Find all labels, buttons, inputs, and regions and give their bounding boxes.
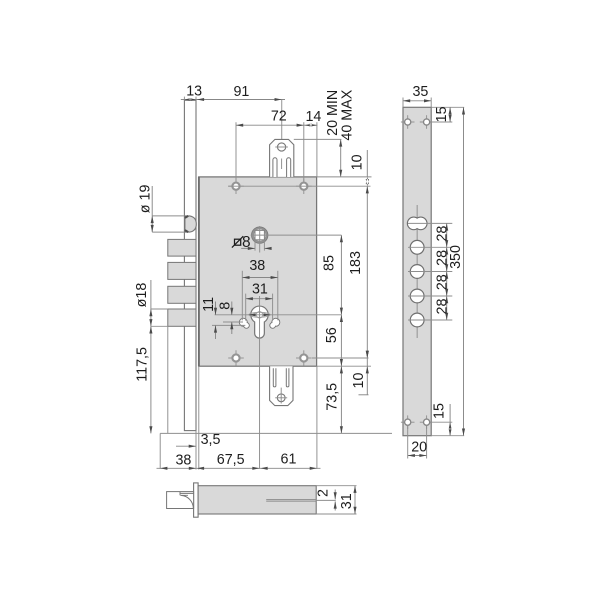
svg-text:117,5: 117,5 <box>135 347 151 382</box>
svg-text:14: 14 <box>305 109 321 125</box>
svg-text:72: 72 <box>271 109 287 125</box>
svg-text:56: 56 <box>324 327 340 343</box>
svg-text:20: 20 <box>411 440 427 456</box>
svg-text:11: 11 <box>201 297 217 312</box>
svg-text:61: 61 <box>281 452 297 468</box>
svg-text:15: 15 <box>431 403 447 419</box>
svg-text:350: 350 <box>448 245 464 269</box>
svg-text:13: 13 <box>186 84 202 100</box>
svg-text:85: 85 <box>321 255 337 271</box>
svg-text:40 MAX: 40 MAX <box>340 89 356 140</box>
svg-text:10: 10 <box>349 154 365 170</box>
svg-text:31: 31 <box>339 493 355 509</box>
svg-text:8: 8 <box>218 302 234 310</box>
svg-text:31: 31 <box>252 282 268 298</box>
svg-text:10: 10 <box>351 373 367 389</box>
svg-text:38: 38 <box>175 452 191 468</box>
svg-text:28: 28 <box>434 274 450 290</box>
svg-text:ø 19: ø 19 <box>137 185 153 214</box>
svg-text:73,5: 73,5 <box>325 383 341 411</box>
svg-text:28: 28 <box>434 299 450 315</box>
svg-text:ø18: ø18 <box>134 283 150 308</box>
svg-text:3,5: 3,5 <box>201 432 221 448</box>
svg-text:35: 35 <box>412 84 428 100</box>
svg-text:8: 8 <box>242 234 251 251</box>
svg-text:2: 2 <box>316 489 332 497</box>
svg-text:67,5: 67,5 <box>217 452 245 468</box>
svg-text:91: 91 <box>233 84 249 100</box>
svg-text:28: 28 <box>434 226 450 242</box>
svg-text:15: 15 <box>434 106 450 122</box>
svg-text:183: 183 <box>348 251 364 275</box>
svg-text:38: 38 <box>249 258 265 274</box>
